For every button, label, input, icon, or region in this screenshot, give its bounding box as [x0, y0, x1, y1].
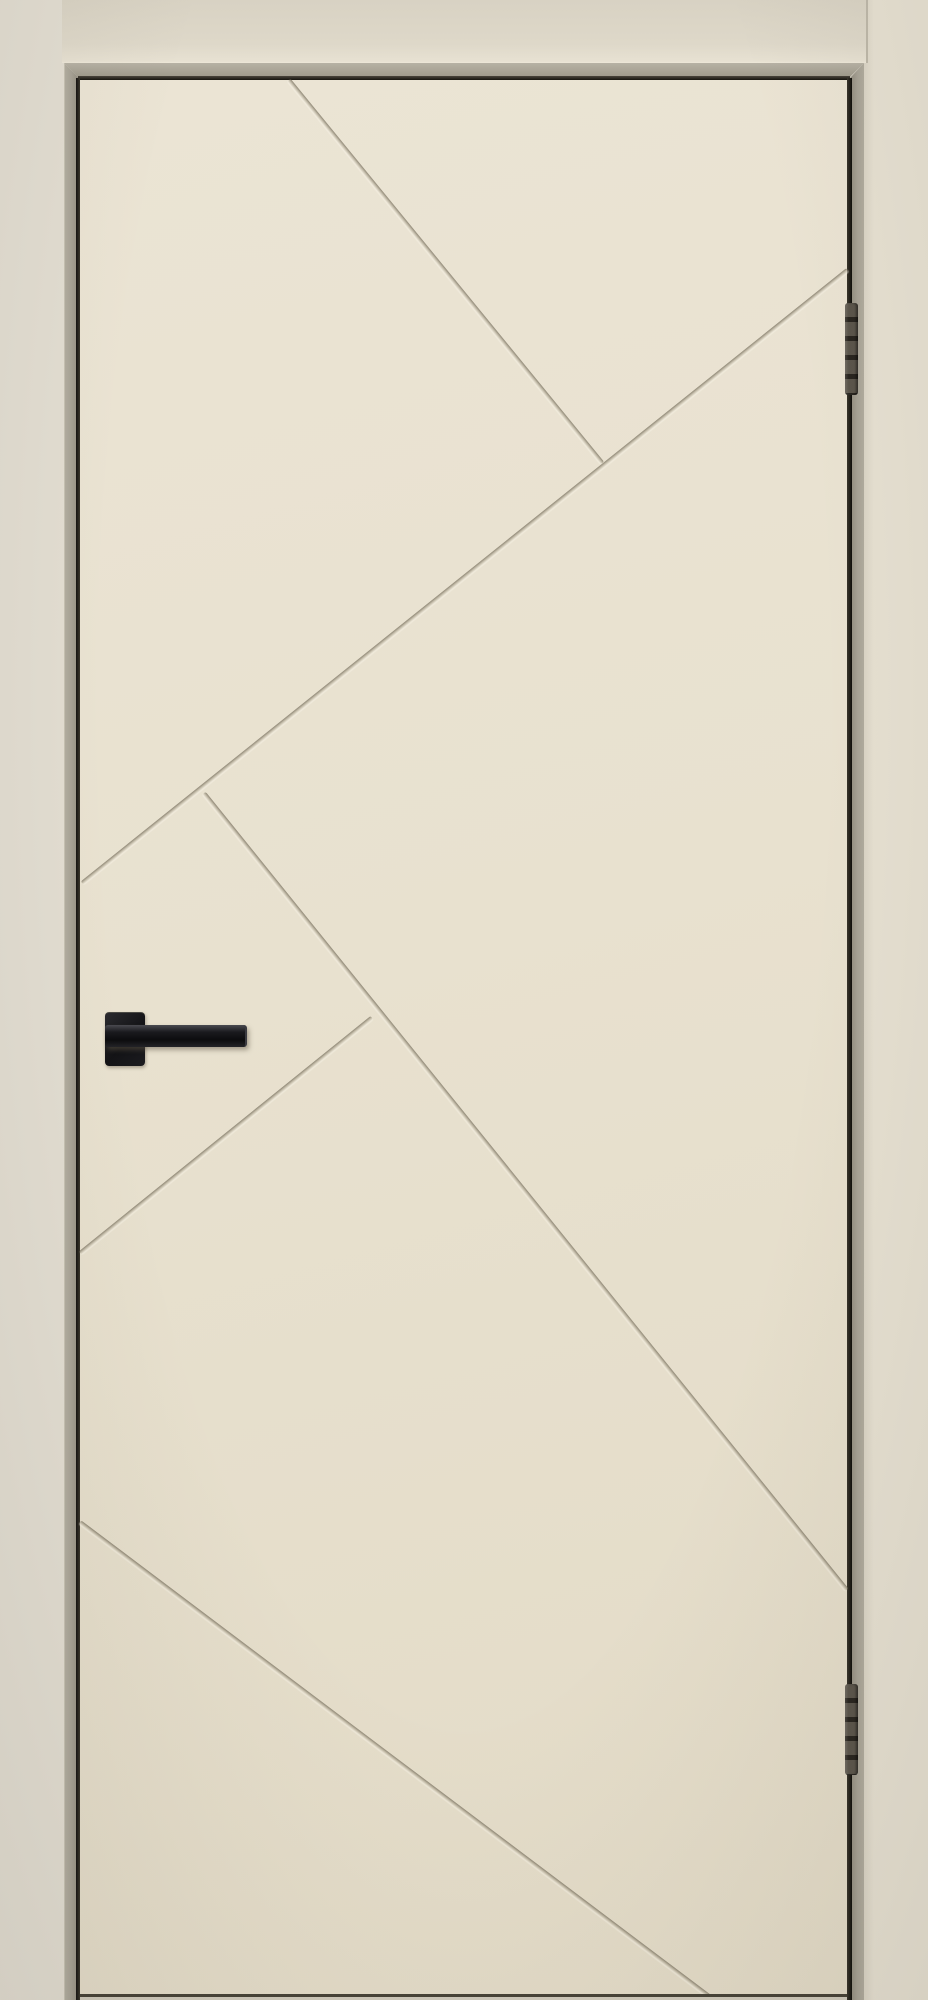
groove-top-branch: [287, 79, 604, 465]
door-handle-lever: [105, 1025, 247, 1047]
top-lintel-casing: [62, 0, 868, 63]
right-casing-board: [864, 0, 928, 2000]
hinge-bottom: [845, 1684, 858, 1775]
door-leaf: [80, 80, 847, 1994]
groove-mid-branch: [202, 792, 848, 1591]
hinge-top: [845, 303, 858, 395]
door-product-photo: [0, 0, 928, 2000]
groove-bottom-diagonal: [79, 1520, 712, 1999]
groove-main-diagonal: [81, 268, 849, 884]
